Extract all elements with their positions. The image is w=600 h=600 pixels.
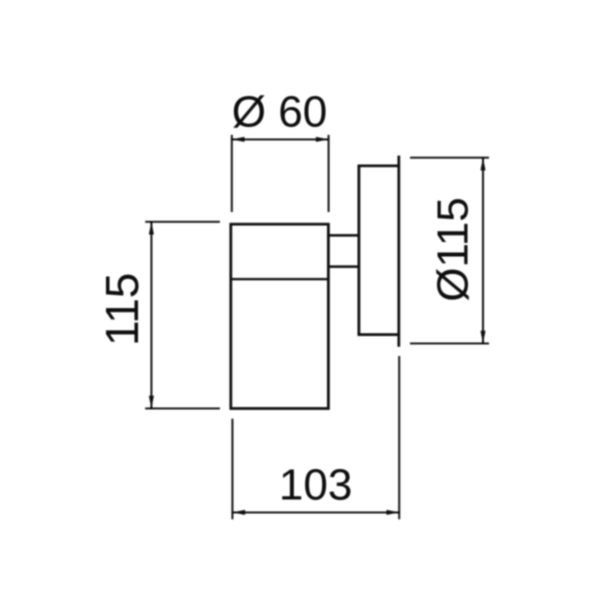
svg-text:Ø115: Ø115 xyxy=(429,197,478,301)
svg-text:Ø 60: Ø 60 xyxy=(232,87,327,136)
svg-text:103: 103 xyxy=(279,461,352,510)
svg-text:115: 115 xyxy=(96,273,148,346)
